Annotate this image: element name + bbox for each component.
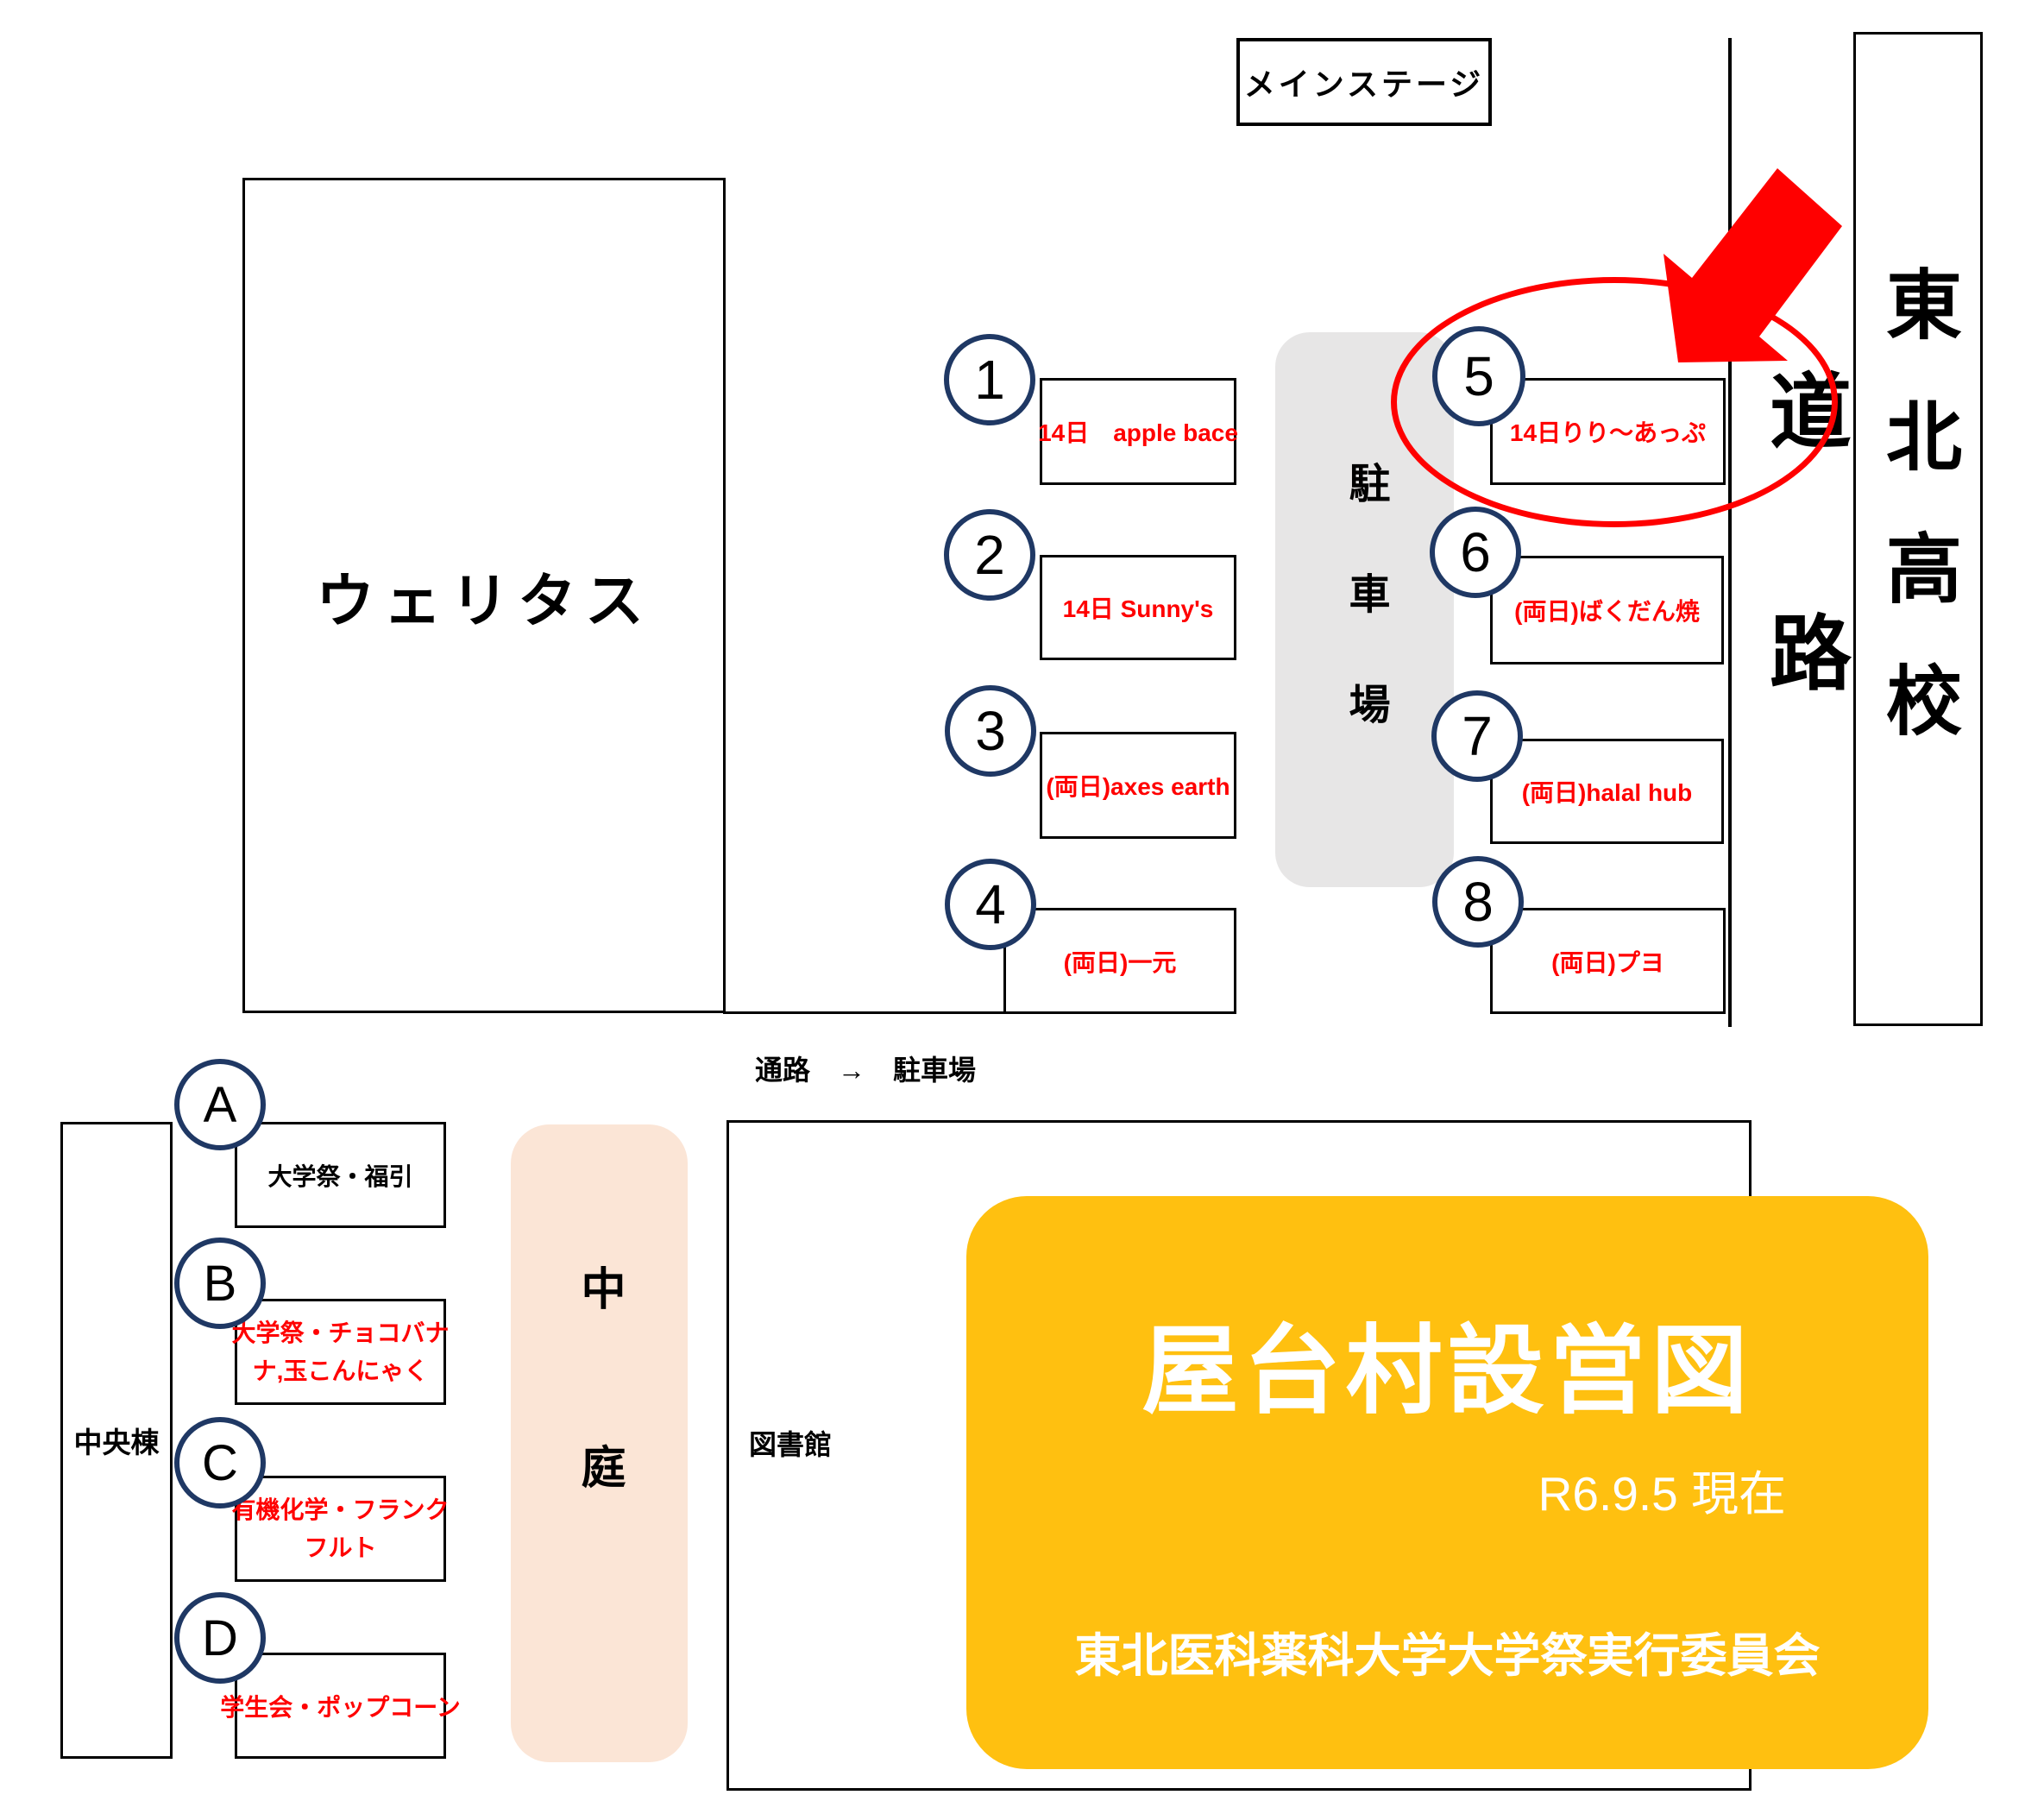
festival-map: メインステージ ウェリタス 東北高校 道路 駐車場 14日 apple bace… [0, 0, 2044, 1795]
highlight-arrow-icon [0, 0, 2044, 1795]
